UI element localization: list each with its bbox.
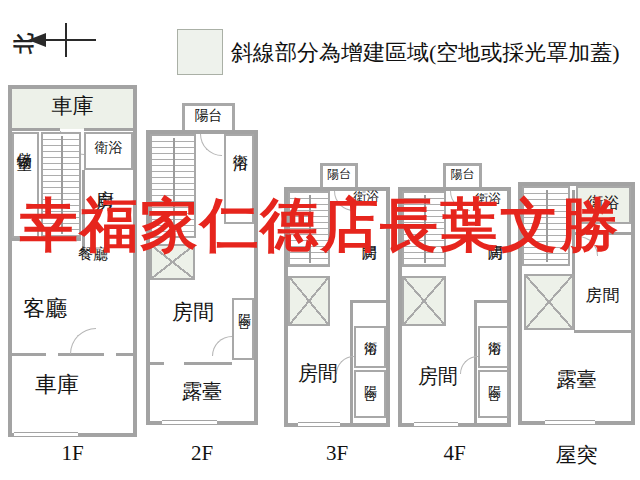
- window: [298, 422, 340, 427]
- room-label-bath-right-3f: 衛浴: [362, 330, 377, 334]
- wall: [116, 353, 133, 356]
- wall: [12, 128, 60, 131]
- room-label-living: 客廳: [14, 296, 76, 321]
- wall: [84, 128, 133, 131]
- room-label-room-2f: 房間: [150, 300, 236, 324]
- window: [14, 432, 78, 437]
- room-label-room-4f: 房間: [404, 365, 472, 388]
- void-xbox-roof: [524, 274, 574, 330]
- floor-label-1f: 1F: [8, 441, 137, 466]
- window: [414, 422, 458, 427]
- floor-label-2f: 2F: [146, 441, 258, 466]
- room-label-room-roof: 房間: [574, 286, 631, 306]
- room-label-room-3f: 房間: [286, 362, 350, 385]
- room-label-balcony-right-4f: 陽台: [486, 376, 501, 380]
- legend-swatch: [177, 29, 223, 75]
- wall: [350, 300, 388, 303]
- room-label-balcony-top-3f: 陽台: [320, 168, 358, 182]
- wall: [574, 330, 631, 333]
- north-arrow-cross: [65, 23, 67, 57]
- wall: [474, 300, 511, 303]
- wall: [184, 362, 232, 365]
- room-label-balcony-top-2f: 陽台: [182, 108, 235, 124]
- room-label-garage-bottom: 車庫: [12, 372, 102, 397]
- floor-label-roof: 屋突: [518, 441, 635, 469]
- floor-label-3f: 3F: [284, 441, 390, 466]
- legend-text: 斜線部分為增建區域(空地或採光罩加蓋): [231, 38, 620, 68]
- room-label-terrace-2f: 露臺: [150, 380, 254, 403]
- window: [545, 420, 595, 425]
- room-label-terrace-roof: 露臺: [520, 368, 633, 391]
- room-label-bath-1f: 衛浴: [84, 140, 133, 156]
- wall: [150, 362, 164, 365]
- floor-plan-diagram: 北 斜線部分為增建區域(空地或採光罩加蓋) 車庫 儲物室 衛浴 廚房 餐廳 客廳…: [0, 0, 640, 480]
- watermark-text: 幸福家仁德店長葉文勝: [0, 196, 640, 254]
- room-label-balcony-right-2f: 陽台: [236, 304, 251, 308]
- void-xbox-4f: [402, 276, 446, 326]
- window: [162, 420, 217, 425]
- void-xbox-3f: [288, 276, 330, 326]
- room-label-balcony-top-4f: 陽台: [443, 168, 482, 182]
- room-label-garage-top: 車庫: [12, 94, 133, 118]
- room-label-kitchen: 廚房: [94, 176, 115, 180]
- room-label-bath-2f: 衛浴: [231, 142, 248, 146]
- room-label-bath-right-4f: 衛浴: [486, 330, 501, 334]
- north-arrow-shaft: [44, 39, 96, 41]
- wall: [12, 353, 46, 356]
- floor-label-4f: 4F: [398, 441, 511, 466]
- room-label-balcony-right-3f: 陽台: [362, 376, 377, 380]
- room-label-storage: 儲物室: [15, 140, 32, 146]
